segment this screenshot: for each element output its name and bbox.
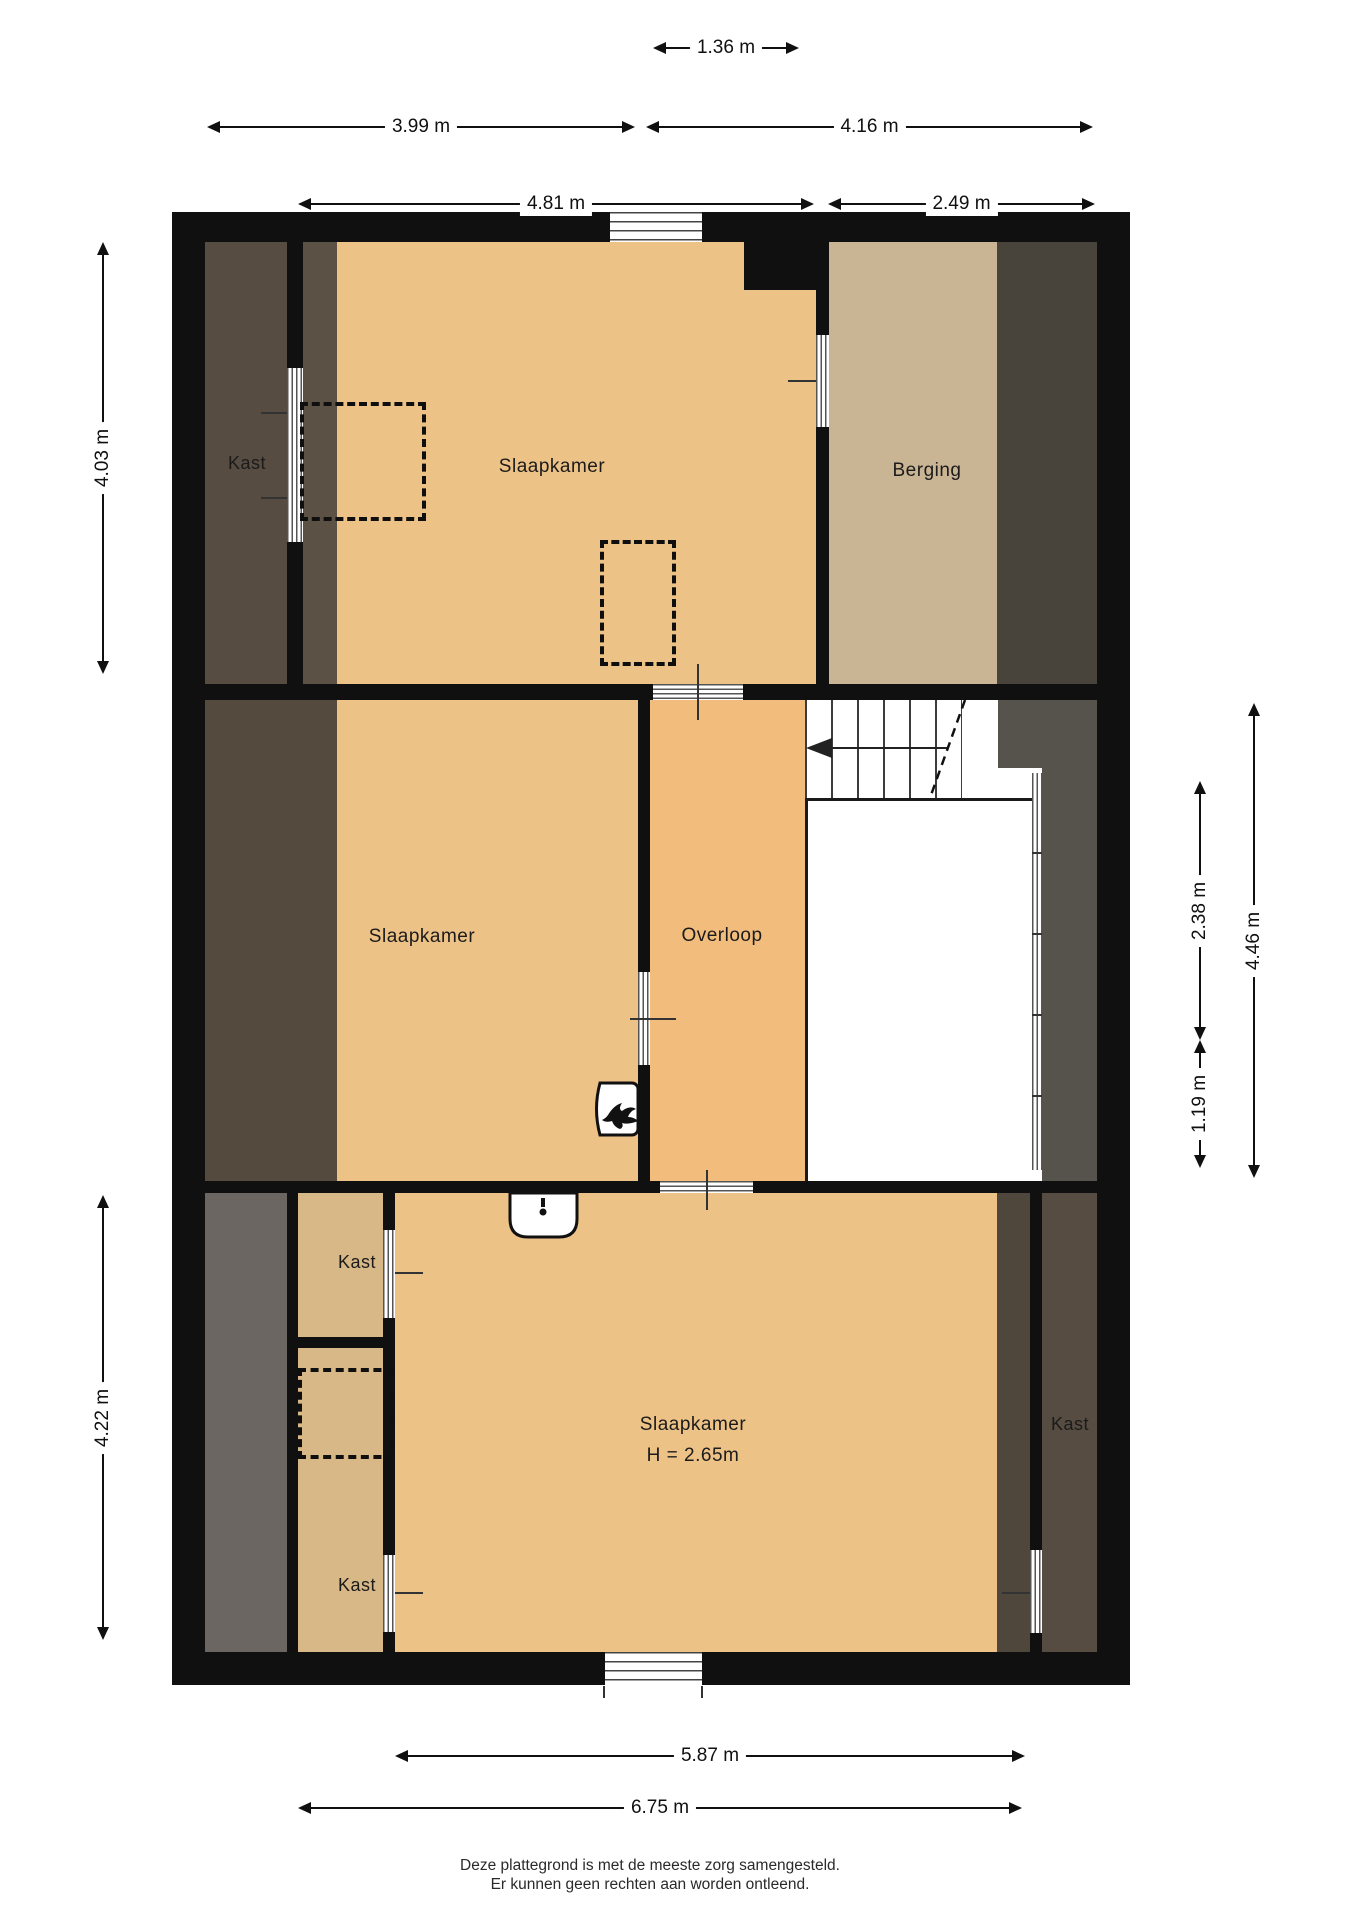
dim-top-5-label: 2.49 m bbox=[925, 192, 997, 216]
stairwell-gray-right bbox=[1042, 768, 1097, 1181]
dim-left-1-label: 4.03 m bbox=[91, 422, 115, 494]
dim-top-3-label: 4.16 m bbox=[833, 115, 905, 139]
room-label-slaapkamer-top: Slaapkamer bbox=[442, 456, 662, 478]
dim-top-2: 3.99 m bbox=[207, 121, 635, 133]
dim-top-4: 4.81 m bbox=[298, 198, 814, 210]
wall-kast-br-a bbox=[1030, 1193, 1042, 1550]
footer-disclaimer-line2: Er kunnen geen rechten aan worden ontlee… bbox=[0, 1876, 1300, 1894]
room-label-berging: Berging bbox=[817, 460, 1037, 482]
dim-top-4-label: 4.81 m bbox=[520, 192, 592, 216]
wall-slaapkamer2-overloop-b bbox=[638, 1065, 650, 1181]
room-label-kast-bl-lower: Kast bbox=[247, 1575, 467, 1596]
stairwell-void bbox=[805, 798, 1035, 1184]
dim-top-2-label: 3.99 m bbox=[385, 115, 457, 139]
stairwell-gray-top bbox=[998, 698, 1097, 768]
window-bottom-tick-right bbox=[701, 1686, 703, 1698]
room-label-slaapkamer-middle: Slaapkamer bbox=[312, 926, 532, 948]
dim-bottom-1-label: 5.87 m bbox=[674, 1744, 746, 1768]
window-stairwell bbox=[1032, 773, 1042, 1170]
dim-right-3: 4.46 m bbox=[1248, 703, 1260, 1178]
door-kast-br bbox=[1030, 1550, 1042, 1633]
wall-kast-br-b bbox=[1030, 1633, 1042, 1652]
wall-midrow2-b bbox=[753, 1181, 1097, 1193]
dim-left-2-label: 4.22 m bbox=[91, 1381, 115, 1453]
outer-wall-top-a bbox=[172, 212, 610, 242]
window-stairwell-tick1 bbox=[1032, 852, 1042, 854]
room-label-kast-bottom-right: Kast bbox=[960, 1414, 1180, 1435]
door-kast-br-tick bbox=[1002, 1592, 1030, 1594]
skylight-dashed-2 bbox=[600, 540, 676, 666]
dim-right-1: 2.38 m bbox=[1194, 781, 1206, 1040]
room-label-kast-top-left: Kast bbox=[137, 453, 357, 474]
door-kast-topleft-tick1 bbox=[261, 412, 287, 414]
dim-left-2: 4.22 m bbox=[97, 1195, 109, 1640]
outer-wall-bottom-b bbox=[702, 1652, 1130, 1685]
dim-top-3: 4.16 m bbox=[646, 121, 1093, 133]
door-kast-bl-upper bbox=[383, 1230, 395, 1318]
dim-right-3-label: 4.46 m bbox=[1242, 904, 1266, 976]
window-stairwell-tick2 bbox=[1032, 933, 1042, 935]
dim-right-1-label: 2.38 m bbox=[1188, 874, 1212, 946]
door-berging-tick bbox=[788, 380, 816, 382]
room-label-overloop: Overloop bbox=[612, 925, 832, 947]
room-label-slaapkamer-bottom: Slaapkamer bbox=[583, 1414, 803, 1436]
dim-bottom-2: 6.75 m bbox=[298, 1802, 1022, 1814]
door-slaapkamer-middle-tick bbox=[630, 1018, 676, 1020]
wall-kast-bl-divider bbox=[287, 1337, 395, 1348]
window-bottom bbox=[605, 1652, 702, 1685]
dim-bottom-1: 5.87 m bbox=[395, 1750, 1025, 1762]
dim-top-1: 1.36 m bbox=[653, 42, 799, 54]
wall-kast-bl-right-a bbox=[383, 1193, 395, 1230]
wall-midrow1-a bbox=[205, 684, 653, 700]
door-slaapkamer-top-tick bbox=[697, 664, 699, 720]
outer-wall-top-notch bbox=[744, 242, 816, 290]
dim-right-2-label: 1.19 m bbox=[1188, 1068, 1212, 1140]
window-stairwell-tick3 bbox=[1032, 1014, 1042, 1016]
stairwell-void-upper bbox=[998, 768, 1032, 798]
wall-midrow1-b bbox=[743, 684, 1097, 700]
door-slaapkamer-bottom-tick bbox=[706, 1170, 708, 1210]
wall-kast-topleft-a bbox=[287, 242, 303, 368]
outer-wall-top-b bbox=[702, 212, 1097, 242]
dim-top-1-label: 1.36 m bbox=[690, 36, 762, 60]
wall-kast-bl-right-c bbox=[383, 1632, 395, 1652]
outer-wall-left bbox=[172, 212, 205, 1685]
dim-right-2: 1.19 m bbox=[1194, 1040, 1206, 1168]
room-label-kast-bl-upper: Kast bbox=[247, 1252, 467, 1273]
door-berging bbox=[816, 335, 829, 427]
window-bottom-tick-left bbox=[603, 1686, 605, 1698]
wall-midrow2-a bbox=[205, 1181, 660, 1193]
door-kast-topleft-tick2 bbox=[261, 497, 287, 499]
room-label-slaapkamer-bottom-height: H = 2.65m bbox=[583, 1445, 803, 1467]
floorplan-canvas: Kast Slaapkamer Berging Slaapkamer Overl… bbox=[0, 0, 1358, 1920]
staircase bbox=[805, 698, 962, 800]
outer-wall-bottom-a bbox=[172, 1652, 605, 1685]
dim-left-1: 4.03 m bbox=[97, 242, 109, 674]
window-stairwell-tick4 bbox=[1032, 1095, 1042, 1097]
dim-top-5: 2.49 m bbox=[828, 198, 1095, 210]
outer-wall-right bbox=[1097, 212, 1130, 1685]
dim-bottom-2-label: 6.75 m bbox=[624, 1796, 696, 1820]
wall-berging-a bbox=[816, 242, 829, 335]
wall-kast-topleft-b bbox=[287, 542, 303, 684]
skylight-dashed-3 bbox=[298, 1368, 394, 1459]
window-top bbox=[610, 212, 702, 242]
footer-disclaimer-line1: Deze plattegrond is met de meeste zorg s… bbox=[0, 1857, 1300, 1875]
